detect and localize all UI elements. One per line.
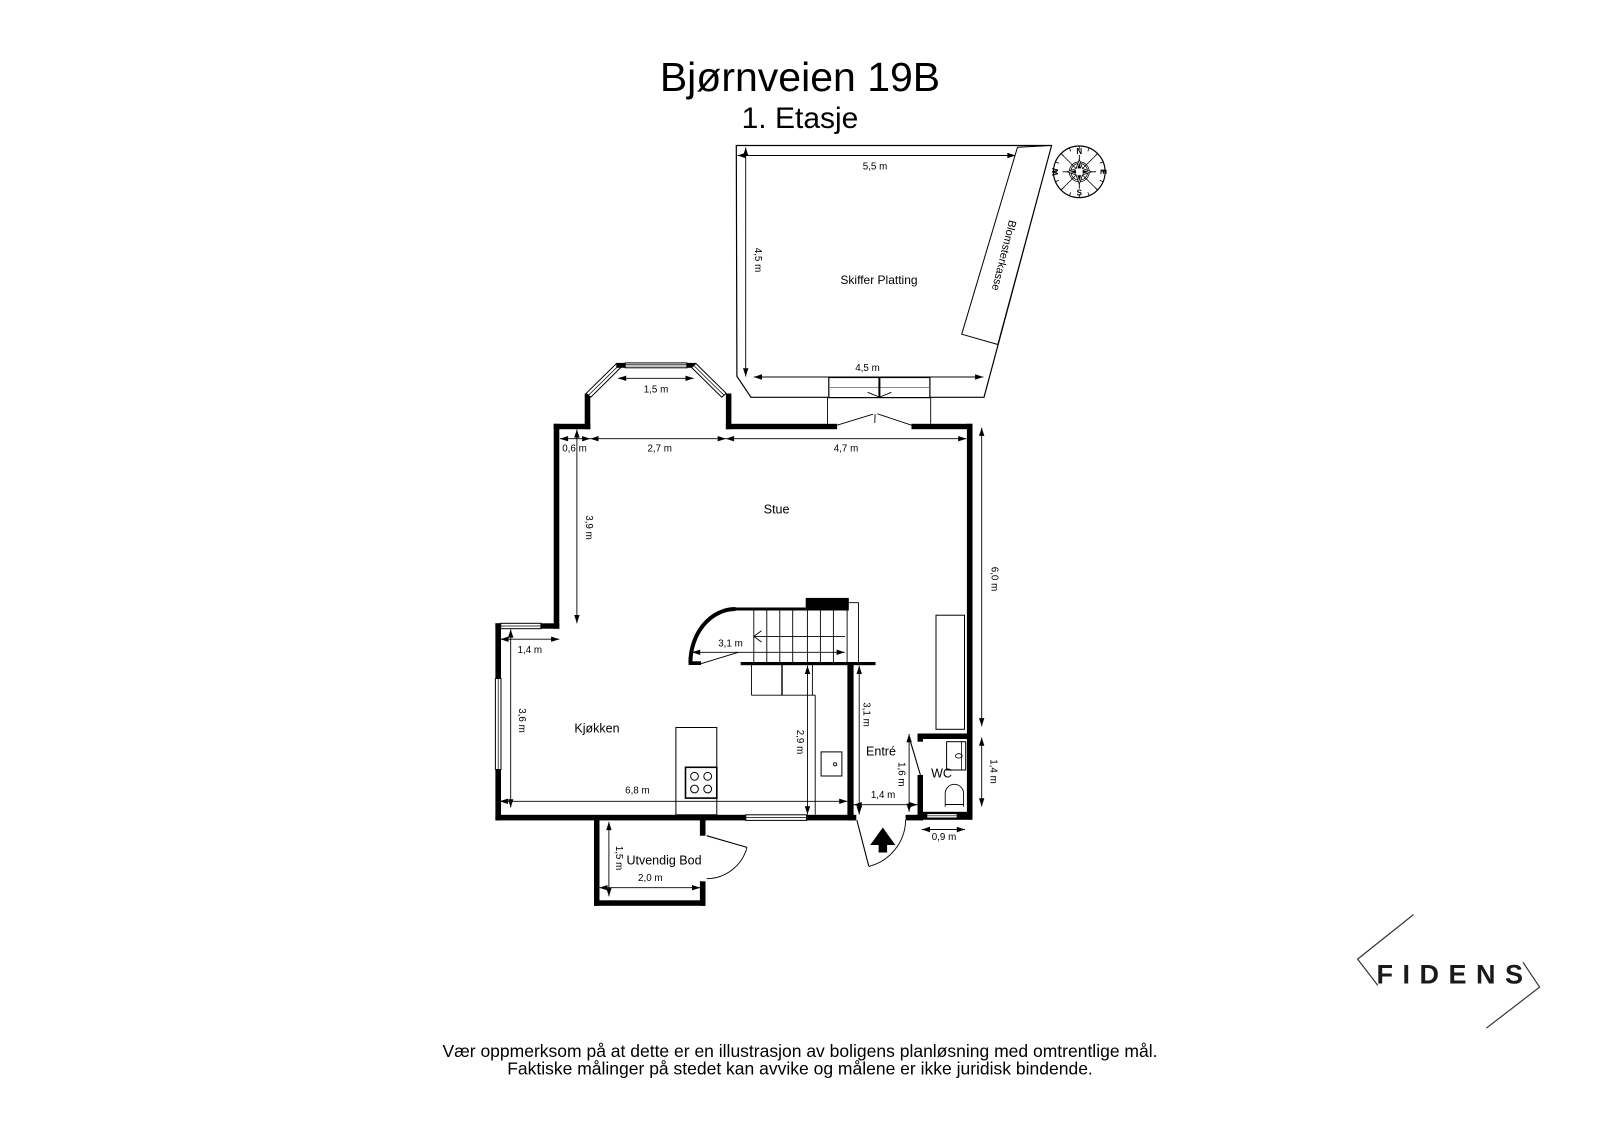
svg-text:2,0 m: 2,0 m [638, 873, 663, 884]
svg-text:0,6 m: 0,6 m [562, 443, 587, 454]
svg-text:Kjøkken: Kjøkken [574, 722, 619, 736]
svg-text:1,4 m: 1,4 m [987, 759, 998, 784]
svg-text:0,9 m: 0,9 m [932, 832, 957, 843]
svg-text:Skiffer Platting: Skiffer Platting [840, 273, 917, 287]
svg-text:Entré: Entré [866, 745, 896, 759]
svg-text:4,5 m: 4,5 m [855, 363, 880, 374]
svg-text:2,9 m: 2,9 m [794, 730, 805, 755]
svg-text:4,5 m: 4,5 m [752, 248, 763, 273]
svg-text:4,7 m: 4,7 m [834, 443, 859, 454]
svg-text:1,4 m: 1,4 m [871, 790, 896, 801]
svg-text:E: E [1099, 169, 1108, 175]
svg-text:WC: WC [931, 767, 952, 781]
svg-text:Bjørnveien 19B: Bjørnveien 19B [660, 54, 940, 100]
svg-text:1,5 m: 1,5 m [613, 846, 624, 871]
svg-text:1,5 m: 1,5 m [644, 384, 669, 395]
svg-text:6,8 m: 6,8 m [625, 785, 650, 796]
svg-text:Faktiske målinger på stedet ka: Faktiske målinger på stedet kan avvike o… [507, 1059, 1093, 1079]
svg-text:Stue: Stue [764, 503, 790, 517]
svg-text:3,6 m: 3,6 m [516, 708, 527, 733]
svg-text:W: W [1051, 168, 1060, 176]
svg-text:6,0 m: 6,0 m [989, 567, 1000, 592]
svg-text:Utvendig Bod: Utvendig Bod [626, 853, 701, 867]
svg-text:1. Etasje: 1. Etasje [742, 102, 859, 135]
svg-text:3,9 m: 3,9 m [583, 515, 594, 540]
svg-text:3,1 m: 3,1 m [718, 638, 743, 649]
svg-text:N: N [1076, 147, 1082, 156]
svg-text:S: S [1077, 189, 1083, 198]
svg-text:5,5 m: 5,5 m [863, 162, 888, 173]
svg-text:3,1 m: 3,1 m [861, 702, 872, 727]
svg-text:1,4 m: 1,4 m [518, 645, 543, 656]
svg-text:2,7 m: 2,7 m [647, 443, 672, 454]
svg-text:1,6 m: 1,6 m [896, 762, 907, 787]
svg-text:FIDENS: FIDENS [1376, 960, 1532, 990]
